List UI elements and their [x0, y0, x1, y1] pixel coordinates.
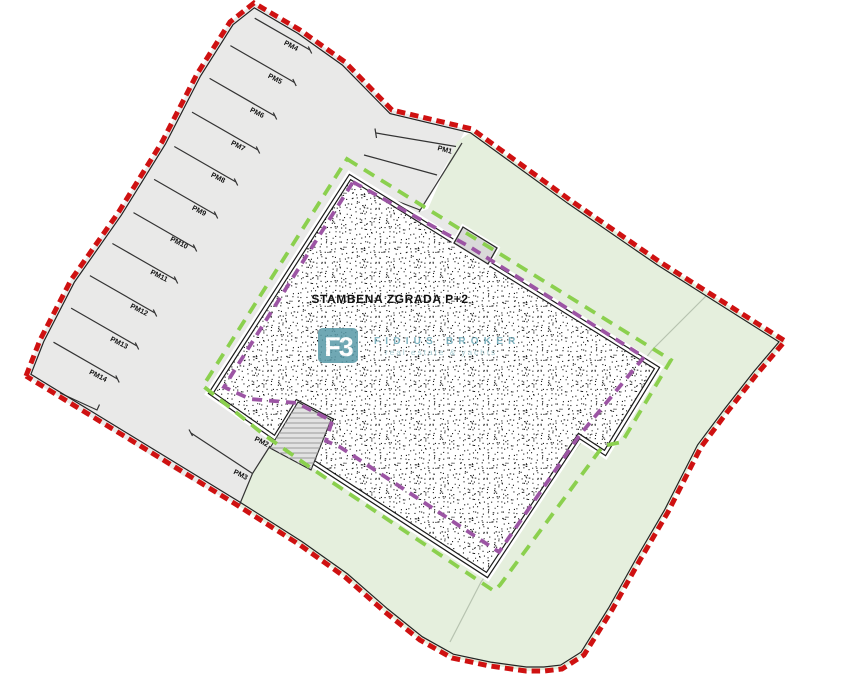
svg-text:F3: F3	[324, 332, 353, 362]
svg-text:FIDIUS BROKER: FIDIUS BROKER	[374, 336, 521, 347]
svg-text:STAMBENA ZGRADA P+2: STAMBENA ZGRADA P+2	[311, 292, 468, 306]
svg-text:real estate & yachts: real estate & yachts	[385, 348, 497, 357]
